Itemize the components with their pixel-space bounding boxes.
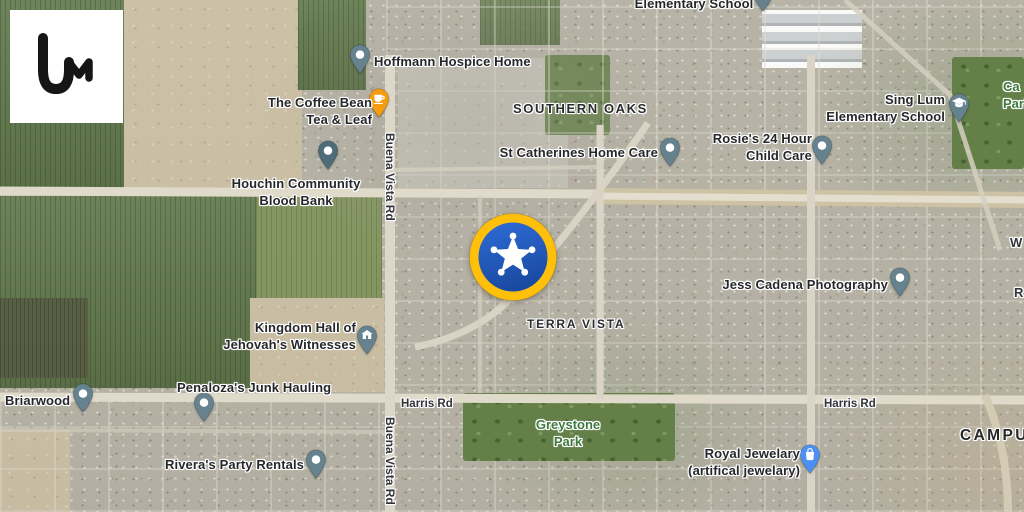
dot-icon xyxy=(659,137,682,167)
commercial-block xyxy=(398,58,568,188)
park-label-greystone-park-line: Park xyxy=(536,433,600,450)
road-white-ln-east xyxy=(595,196,1024,200)
poi-pin-rosies-24-hour-child-care[interactable] xyxy=(811,135,834,165)
road-label-harris-rd-west: Harris Rd xyxy=(401,398,453,410)
poi-label-houchin-blood-bank[interactable]: Houchin CommunityBlood Bank xyxy=(232,175,361,209)
road-label-buena-vista-rd-north: Buena Vista Rd xyxy=(383,133,397,221)
poi-label-st-catherines-home-care[interactable]: St Catherines Home Care xyxy=(500,144,658,161)
poi-label-royal-jewelary-line: (artifical jewelary) xyxy=(688,462,800,479)
road-label-buena-vista-rd-south: Buena Vista Rd xyxy=(383,417,397,505)
poi-pin-penalozas-junk-hauling[interactable] xyxy=(193,392,216,422)
liveuamap-um-glyph-icon xyxy=(10,10,123,123)
grad-cap-icon xyxy=(948,93,971,123)
park-label-campus-park-line: Ca xyxy=(1003,78,1024,95)
poi-label-rosies-24-hour-child-care[interactable]: Rosie's 24 HourChild Care xyxy=(713,130,812,164)
poi-pin-elementary-school-north[interactable] xyxy=(752,0,775,12)
poi-pin-hoffmann-hospice-home[interactable] xyxy=(349,44,372,74)
sheriff-star-icon xyxy=(468,212,558,302)
poi-pin-houchin-blood-bank[interactable] xyxy=(317,140,340,170)
school-buildings xyxy=(762,10,862,68)
poi-label-rosies-24-hour-child-care-line: Child Care xyxy=(713,147,812,164)
road-label-r-road-partial: R xyxy=(1014,285,1023,300)
area-label-campus: CAMPUS xyxy=(960,427,1024,445)
field-patch xyxy=(0,196,382,388)
poi-label-hoffmann-hospice-home[interactable]: Hoffmann Hospice Home xyxy=(374,53,531,70)
poi-pin-sing-lum-elementary[interactable] xyxy=(948,93,971,123)
poi-label-penalozas-junk-hauling-line: Penaloza's Junk Hauling xyxy=(177,379,331,396)
dot-icon xyxy=(889,267,912,297)
road-street-mid xyxy=(390,167,600,170)
poi-pin-jess-cadena-photography[interactable] xyxy=(889,267,912,297)
poi-label-hoffmann-hospice-home-line: Hoffmann Hospice Home xyxy=(374,53,531,70)
park-label-campus-park-line: Park xyxy=(1003,95,1024,112)
building-icon xyxy=(356,325,379,355)
dot-icon xyxy=(72,383,95,413)
poi-label-royal-jewelary-line: Royal Jewelary xyxy=(688,445,800,462)
poi-label-houchin-blood-bank-line: Houchin Community xyxy=(232,175,361,192)
poi-label-coffee-bean-tea-leaf-line: Tea & Leaf xyxy=(268,111,372,128)
road-diagonal-campus-park xyxy=(845,0,1000,250)
dark-field-patch xyxy=(0,298,88,378)
dot-icon xyxy=(349,44,372,74)
school-field xyxy=(545,55,610,135)
park-label-campus-park: CaPark xyxy=(1003,78,1024,112)
dirt-patch xyxy=(0,430,70,512)
poi-pin-riveras-party-rentals[interactable] xyxy=(305,449,328,479)
dot-icon xyxy=(752,0,775,12)
road-street-bottom-left xyxy=(0,430,386,432)
map-canvas[interactable]: SOUTHERN OAKSTERRA VISTACAMPUSCaParkGrey… xyxy=(0,0,1024,512)
poi-pin-briarwood[interactable] xyxy=(72,383,95,413)
poi-label-kingdom-hall-line: Kingdom Hall of xyxy=(223,319,356,336)
road-label-harris-rd-east: Harris Rd xyxy=(824,398,876,410)
park-label-greystone-park: GreystonePark xyxy=(536,416,600,450)
poi-label-riveras-party-rentals[interactable]: Rivera's Party Rentals xyxy=(165,456,304,473)
poi-pin-kingdom-hall[interactable] xyxy=(356,325,379,355)
dot-icon xyxy=(193,392,216,422)
poi-label-royal-jewelary[interactable]: Royal Jewelary(artifical jewelary) xyxy=(688,445,800,479)
poi-label-coffee-bean-tea-leaf-line: The Coffee Bean xyxy=(268,94,372,111)
poi-label-riveras-party-rentals-line: Rivera's Party Rentals xyxy=(165,456,304,473)
poi-label-briarwood-line: Briarwood xyxy=(5,392,70,409)
dot-icon xyxy=(317,140,340,170)
poi-label-penalozas-junk-hauling[interactable]: Penaloza's Junk Hauling xyxy=(177,379,331,396)
poi-label-sing-lum-elementary-line: Elementary School xyxy=(826,108,945,125)
bag-icon xyxy=(799,444,822,474)
poi-pin-royal-jewelary[interactable] xyxy=(799,444,822,474)
poi-label-sing-lum-elementary[interactable]: Sing LumElementary School xyxy=(826,91,945,125)
poi-pin-st-catherines-home-care[interactable] xyxy=(659,137,682,167)
poi-label-jess-cadena-photography-line: Jess Cadena Photography xyxy=(722,276,888,293)
area-label-terra-vista: TERRA VISTA xyxy=(527,317,625,331)
poi-label-sing-lum-elementary-line: Sing Lum xyxy=(826,91,945,108)
poi-label-coffee-bean-tea-leaf[interactable]: The Coffee BeanTea & Leaf xyxy=(268,94,372,128)
poi-label-jess-cadena-photography[interactable]: Jess Cadena Photography xyxy=(722,276,888,293)
park-label-greystone-park-line: Greystone xyxy=(536,416,600,433)
sheriff-star-event-badge[interactable] xyxy=(468,212,558,302)
dot-icon xyxy=(305,449,328,479)
dot-icon xyxy=(811,135,834,165)
area-label-southern-oaks: SOUTHERN OAKS xyxy=(513,101,648,116)
poi-label-briarwood[interactable]: Briarwood xyxy=(5,392,70,409)
poi-label-elementary-school-north-line: Elementary School xyxy=(635,0,754,12)
poi-label-kingdom-hall[interactable]: Kingdom Hall ofJehovah's Witnesses xyxy=(223,319,356,353)
road-white-ln-east-center xyxy=(595,196,1024,200)
field-patch-light xyxy=(256,196,382,298)
poi-label-rosies-24-hour-child-care-line: Rosie's 24 Hour xyxy=(713,130,812,147)
poi-label-houchin-blood-bank-line: Blood Bank xyxy=(232,192,361,209)
field-patch xyxy=(480,0,560,45)
poi-label-kingdom-hall-line: Jehovah's Witnesses xyxy=(223,336,356,353)
road-curve-bottom-right xyxy=(985,395,1008,512)
road-label-w-road-partial: W xyxy=(1010,235,1022,250)
poi-label-elementary-school-north[interactable]: Elementary School xyxy=(635,0,754,12)
poi-label-st-catherines-home-care-line: St Catherines Home Care xyxy=(500,144,658,161)
liveuamap-logo[interactable] xyxy=(10,10,123,123)
